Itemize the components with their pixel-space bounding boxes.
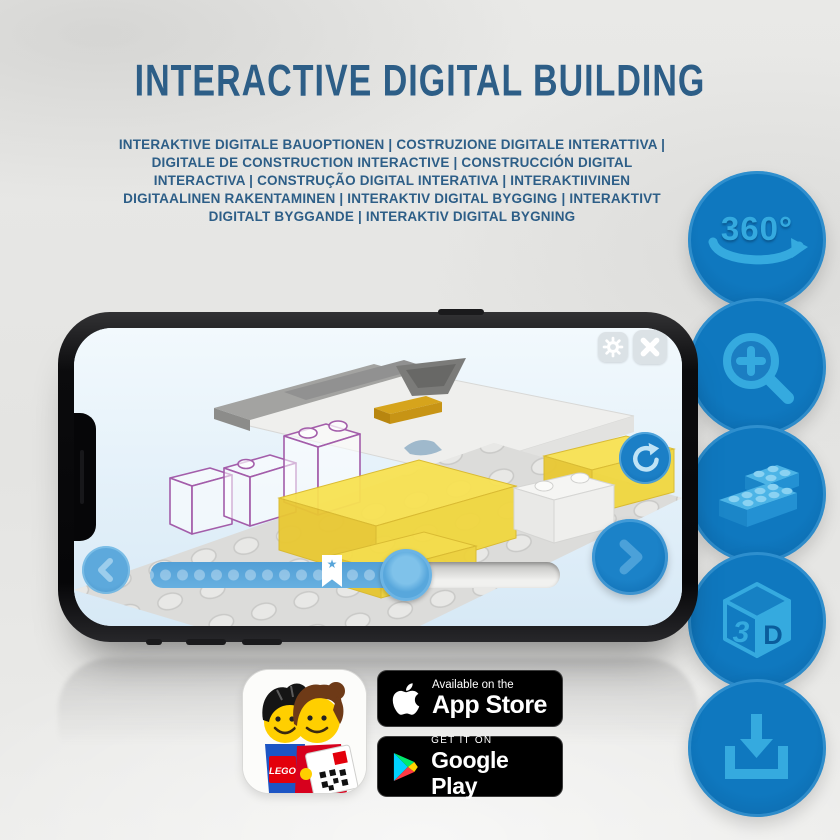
- feature-button-3d[interactable]: 3 D: [688, 552, 826, 690]
- feature-button-bricks[interactable]: [688, 425, 826, 563]
- progress-fill: [150, 562, 406, 588]
- rotate-view-button[interactable]: [619, 432, 671, 484]
- chevron-right-icon: [614, 538, 646, 576]
- phone-volume-up-button: [186, 639, 226, 645]
- apple-icon: [391, 681, 421, 717]
- cube-label-3: 3: [733, 616, 750, 649]
- app-screen: ★: [74, 328, 682, 626]
- app-store-name: App Store: [432, 692, 547, 719]
- phone-volume-down-button: [242, 639, 282, 645]
- google-play-tagline: GET IT ON: [431, 735, 549, 747]
- close-icon: [640, 337, 660, 357]
- phone-power-button: [438, 309, 484, 315]
- lego-bricks-icon: [707, 448, 807, 540]
- phone-speaker: [80, 450, 84, 504]
- google-play-badge[interactable]: GET IT ON Google Play: [377, 736, 563, 797]
- next-step-button[interactable]: [592, 519, 668, 595]
- chevron-left-icon: [95, 557, 117, 583]
- gear-icon: [602, 336, 624, 358]
- lego-app-icon[interactable]: LEGO: [243, 670, 366, 793]
- google-play-icon: [391, 749, 420, 785]
- close-button[interactable]: [633, 330, 667, 364]
- lego-logo-text: LEGO: [269, 766, 297, 777]
- previous-step-button[interactable]: [82, 546, 130, 594]
- zoom-in-magnifier-icon: [713, 323, 801, 411]
- settings-button[interactable]: [598, 332, 628, 362]
- google-play-name: Google Play: [431, 747, 549, 799]
- download-icon: [713, 704, 801, 792]
- 3d-cube-icon: 3 D: [712, 576, 802, 666]
- app-store-badge[interactable]: Available on the App Store: [377, 670, 563, 727]
- feature-button-360[interactable]: 360°: [688, 171, 826, 309]
- page-title: INTERACTIVE DIGITAL BUILDING: [0, 56, 840, 107]
- build-progress-slider[interactable]: ★: [150, 562, 560, 588]
- lego-minifigures-illustration: LEGO: [243, 670, 366, 793]
- progress-handle[interactable]: [380, 549, 432, 601]
- rotate-arrow-icon: [629, 442, 661, 474]
- translations-text: INTERAKTIVE DIGITALE BAUOPTIONEN | COSTR…: [112, 136, 672, 226]
- phone-notch: [74, 413, 96, 541]
- 360-rotation-icon: [705, 236, 809, 272]
- smartphone: ★: [58, 312, 698, 642]
- app-store-tagline: Available on the: [432, 679, 547, 692]
- cube-label-d: D: [763, 620, 783, 650]
- marketing-graphic: INTERACTIVE DIGITAL BUILDING INTERAKTIVE…: [0, 0, 840, 840]
- feature-button-zoom[interactable]: [688, 298, 826, 436]
- feature-button-download[interactable]: [688, 679, 826, 817]
- phone-mute-switch: [146, 639, 162, 645]
